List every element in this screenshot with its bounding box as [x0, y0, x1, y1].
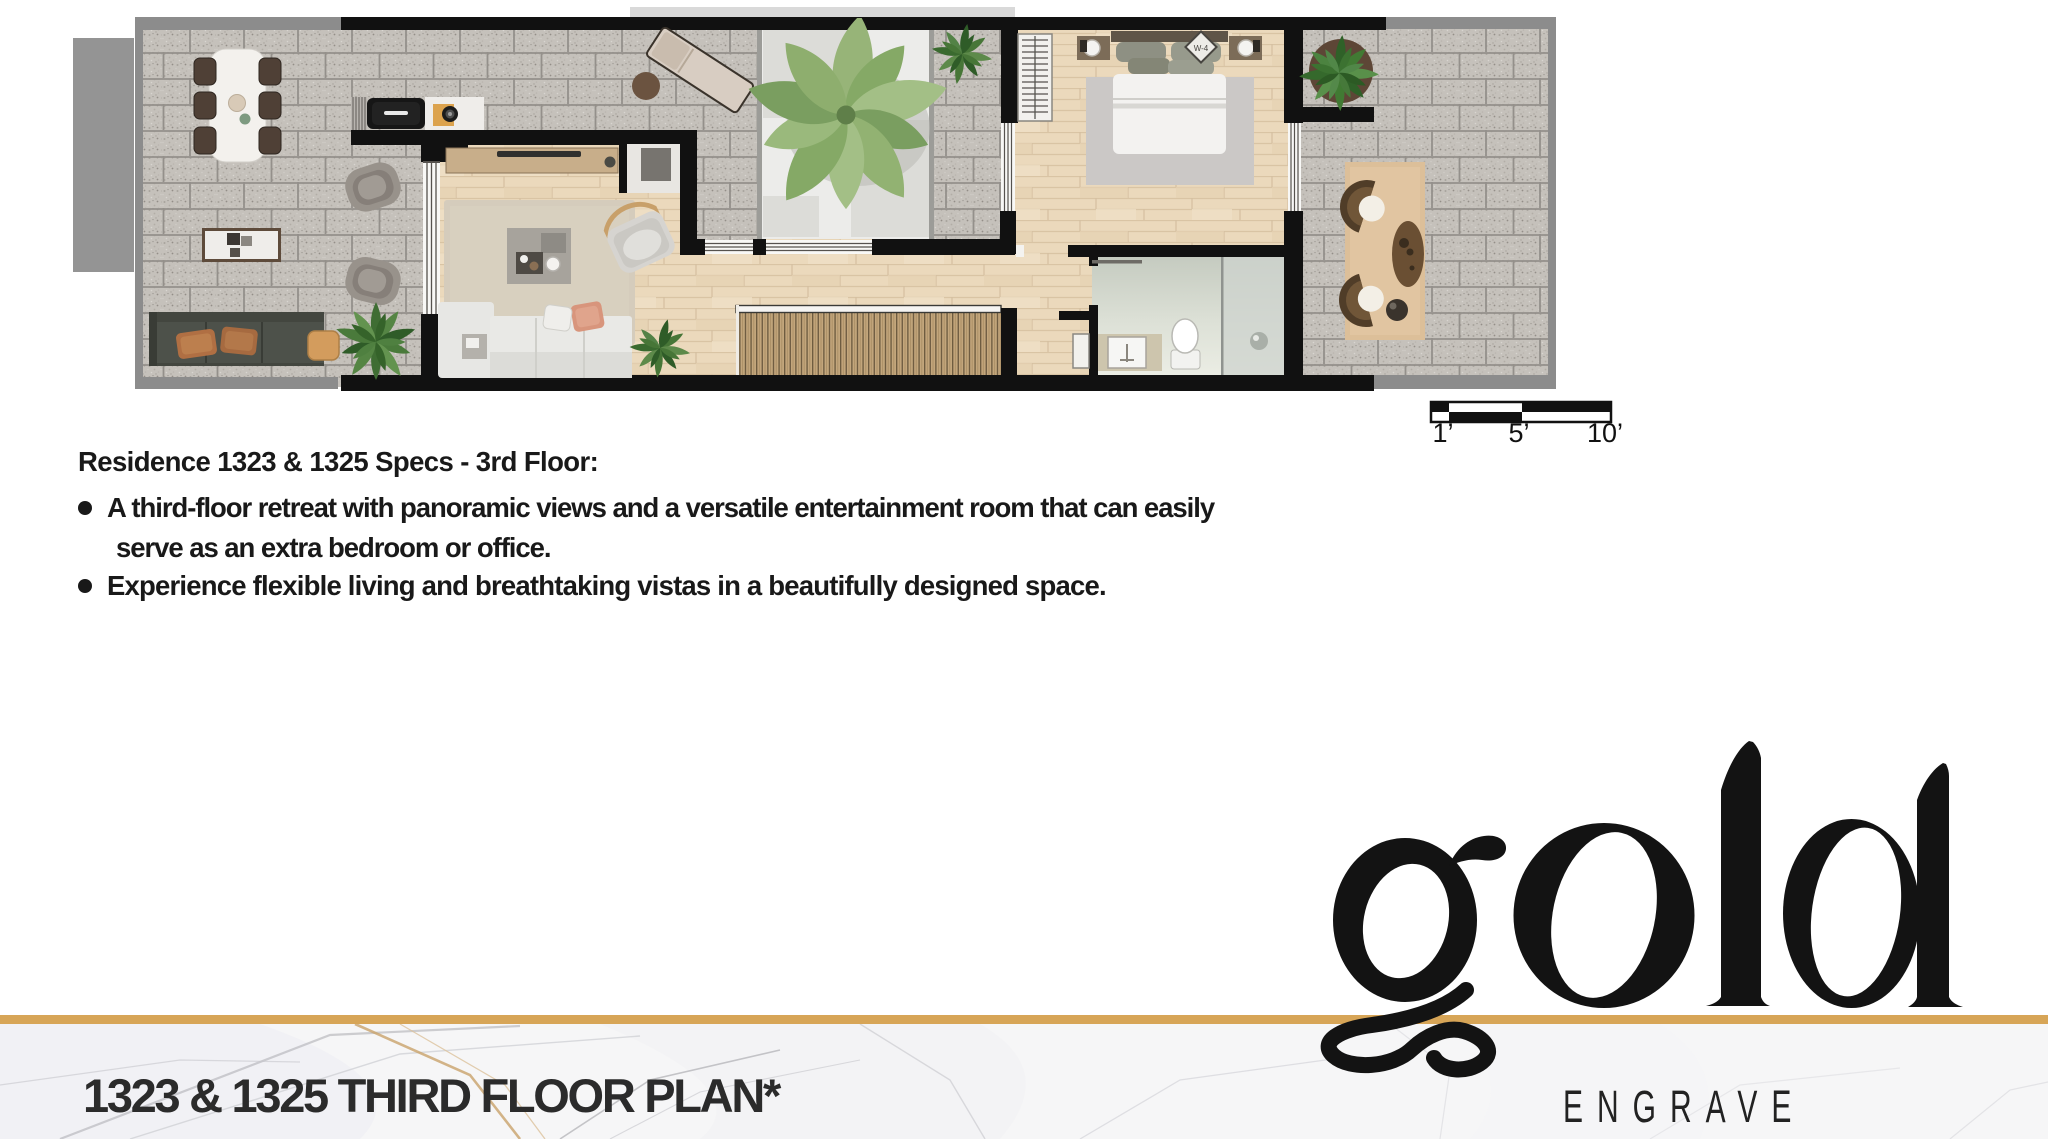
- svg-text:10’: 10’: [1587, 418, 1623, 448]
- svg-text:1323 & 1325 THIRD FLOOR PLAN*: 1323 & 1325 THIRD FLOOR PLAN*: [83, 1069, 782, 1122]
- svg-text:Residence 1323 & 1325 Specs -: Residence 1323 & 1325 Specs - 3rd Floor:: [78, 446, 598, 477]
- svg-text:ENGRAVE: ENGRAVE: [1563, 1082, 1805, 1133]
- svg-text:Experience flexible living and: Experience flexible living and breathtak…: [107, 570, 1106, 601]
- svg-text:W-4: W-4: [1194, 44, 1209, 53]
- svg-text:5’: 5’: [1508, 418, 1529, 448]
- svg-text:1’: 1’: [1432, 418, 1453, 448]
- svg-text:serve as an extra bedroom or o: serve as an extra bedroom or office.: [116, 532, 550, 563]
- svg-text:A third-floor retreat with pan: A third-floor retreat with panoramic vie…: [107, 492, 1216, 523]
